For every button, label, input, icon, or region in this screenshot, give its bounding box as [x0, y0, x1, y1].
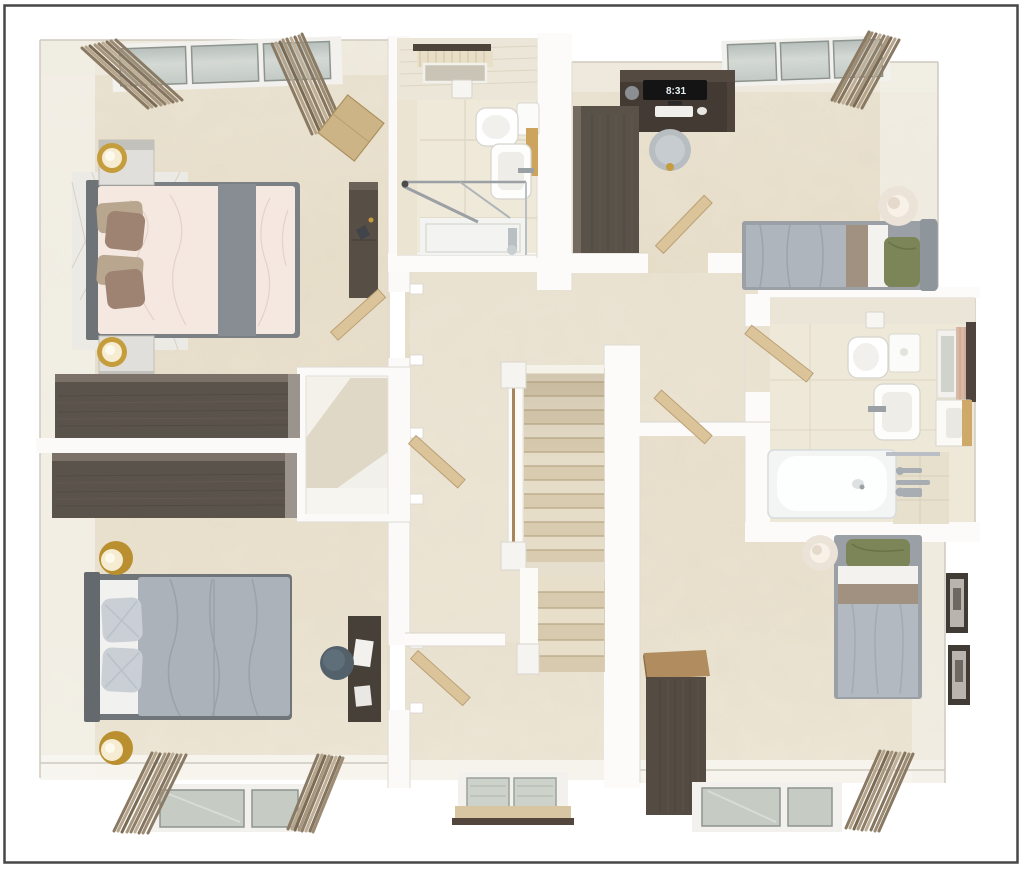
svg-text:8:31: 8:31 — [666, 86, 686, 97]
